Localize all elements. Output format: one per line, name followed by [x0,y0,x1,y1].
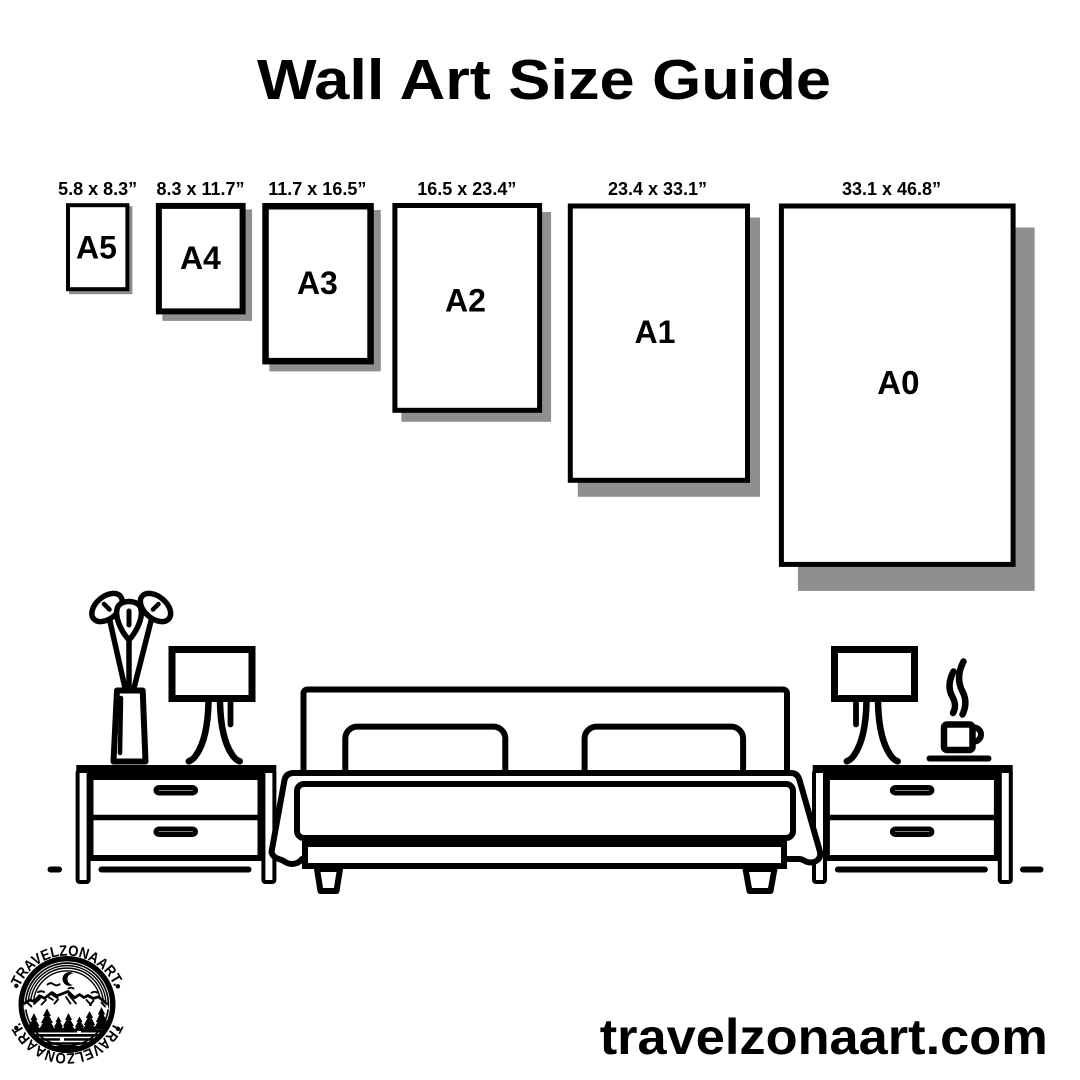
svg-text:23.4 x 33.1”: 23.4 x 33.1” [608,179,707,199]
svg-text:A4: A4 [180,240,221,276]
svg-text:33.1 x 46.8”: 33.1 x 46.8” [842,179,941,199]
svg-text:A1: A1 [635,314,676,350]
svg-text:A3: A3 [297,265,338,301]
svg-text:A2: A2 [445,283,486,319]
svg-text:travelzonaart.com: travelzonaart.com [600,1009,1048,1065]
svg-text:16.5 x 23.4”: 16.5 x 23.4” [417,179,516,199]
svg-text:8.3 x 11.7”: 8.3 x 11.7” [156,179,244,199]
svg-text:A5: A5 [76,230,117,266]
svg-text:Wall Art Size Guide: Wall Art Size Guide [257,48,831,112]
svg-text:11.7 x 16.5”: 11.7 x 16.5” [268,179,366,199]
svg-text:5.8 x 8.3”: 5.8 x 8.3” [58,179,137,199]
svg-text:A0: A0 [877,364,919,401]
